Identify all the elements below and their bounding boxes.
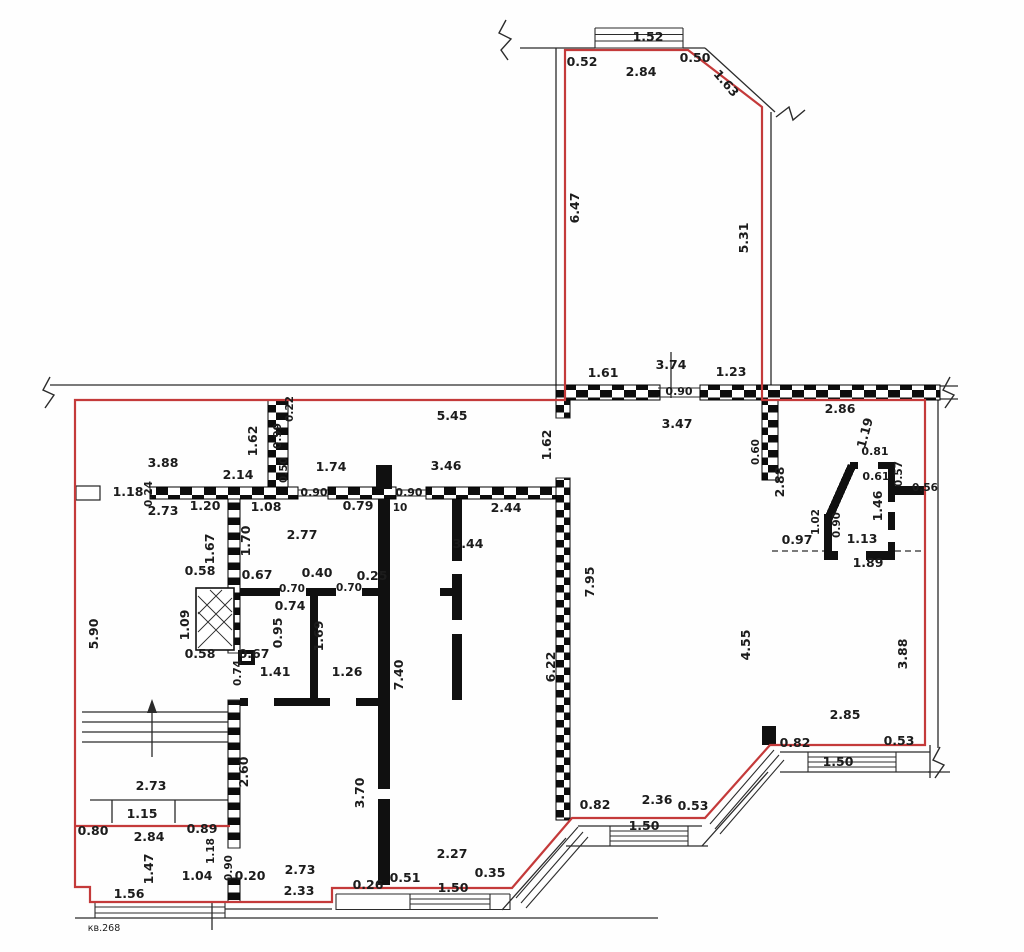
dimension-label: 2.27 [437, 846, 468, 861]
dimension-label: 0.60 [750, 439, 762, 465]
dimension-label: 1.47 [141, 854, 156, 885]
dimension-label: 2.14 [223, 467, 254, 482]
dimension-label: 0.82 [580, 797, 611, 812]
dimension-label: 1.74 [316, 459, 347, 474]
dimension-label: 3.44 [453, 536, 484, 551]
dimension-label: 2.84 [134, 829, 165, 844]
dimension-label: 7.40 [391, 659, 406, 690]
staircase [82, 699, 228, 757]
dimension-label: 2.77 [287, 527, 318, 542]
dimension-label: 1.41 [260, 664, 291, 679]
dimension-label: 0.22 [284, 396, 296, 422]
dimension-label: 3.88 [895, 639, 910, 670]
dimension-label: 0.89 [187, 821, 218, 836]
dimension-label: 0.57 [893, 461, 905, 487]
dimension-label: 0.82 [780, 735, 811, 750]
dimension-label: 0.90 [300, 486, 327, 499]
dimension-label: 1.50 [438, 880, 469, 895]
floor-plan-svg: 1.520.522.840.501.636.475.311.613.741.23… [0, 0, 1024, 952]
dimension-label: 1.23 [716, 364, 747, 379]
dimension-label: 1.62 [539, 430, 554, 461]
dimension-label: 0.90 [665, 385, 692, 398]
dimension-label: 0.50 [278, 457, 290, 483]
dimension-label: 0.99 [272, 423, 284, 449]
dimension-label: 0.25 [357, 568, 388, 583]
dimension-label: 10 [393, 502, 408, 514]
dimension-label: 0.90 [395, 486, 422, 499]
dimension-label: 1.13 [847, 531, 878, 546]
dimension-label: 1.18 [113, 484, 144, 499]
dimension-label: 0.52 [567, 54, 598, 69]
dimension-label: 2.86 [825, 401, 856, 416]
dimension-label: 1.63 [711, 66, 743, 99]
dimension-label: 2.44 [491, 500, 522, 515]
dimension-label: 0.50 [680, 50, 711, 65]
dimension-label: 0.80 [78, 823, 109, 838]
dimension-label: 1.61 [588, 365, 619, 380]
dimension-label: 2.85 [830, 707, 861, 722]
dimension-label: 6.47 [567, 193, 582, 224]
dimension-label: 1.56 [114, 886, 145, 901]
dimension-label: 1.26 [332, 664, 363, 679]
dimension-label: 0.81 [861, 445, 888, 458]
dimension-label: 0.74 [232, 660, 244, 686]
dimension-label: 1.46 [870, 490, 885, 521]
vent-shaft [196, 588, 234, 650]
dimension-label: 0.40 [302, 565, 333, 580]
dimension-label: 1.50 [629, 818, 660, 833]
dimension-label: 1.08 [251, 499, 282, 514]
dimension-label: 0.53 [884, 733, 915, 748]
load-bearing-walls [150, 385, 940, 902]
dimension-label: 6.22 [543, 652, 558, 683]
dimension-label: 0.58 [185, 646, 216, 661]
dimension-label: 3.74 [656, 357, 687, 372]
dimension-label: 2.84 [626, 64, 657, 79]
dimension-label: 1.18 [205, 838, 217, 864]
dimension-label: 3.46 [431, 458, 462, 473]
dimension-label: 0.70 [279, 583, 305, 595]
dimension-label: 0.56 [912, 482, 938, 494]
dimension-label: 2.73 [136, 778, 167, 793]
dimension-label: 0.97 [782, 532, 813, 547]
dimension-label: 3.47 [662, 416, 693, 431]
dimension-label: 1.09 [177, 610, 192, 641]
dimension-label: 2.73 [285, 862, 316, 877]
dimension-label: 1.67 [202, 534, 217, 565]
dimension-label: 0.74 [275, 598, 306, 613]
dimension-label: 2.33 [284, 883, 315, 898]
dimension-label: 0.95 [270, 618, 285, 649]
dimension-label: 0.53 [678, 798, 709, 813]
dimension-label: 2.36 [642, 792, 673, 807]
dimension-label: 0.79 [343, 498, 374, 513]
dimension-label: 3.70 [352, 777, 367, 808]
wall-niche [76, 486, 100, 500]
dimension-label: 1.20 [190, 498, 221, 513]
dimension-label: 5.45 [437, 408, 468, 423]
dimension-label: 0.67 [242, 567, 273, 582]
dimension-label: 0.90 [223, 855, 235, 881]
dimension-label: 0.58 [185, 563, 216, 578]
stairs-up-arrow [147, 699, 157, 713]
dimension-label: 0.90 [831, 512, 843, 538]
dimension-label: 7.95 [582, 567, 597, 598]
dimension-label: 3.88 [148, 455, 179, 470]
dimension-label: 5.90 [86, 618, 101, 649]
dimension-label: 4.55 [738, 630, 753, 661]
dimension-label: 1.50 [823, 754, 854, 769]
dimension-label: 1.89 [853, 555, 884, 570]
dimension-label: 0.61 [862, 470, 889, 483]
dimension-label: 1.70 [238, 525, 253, 556]
dimension-label: 0.20 [235, 868, 266, 883]
dimension-labels: 1.520.522.840.501.636.475.311.613.741.23… [78, 29, 938, 901]
dimension-label: 2.73 [148, 503, 179, 518]
dimension-label: 1.15 [127, 806, 158, 821]
dimension-label: 0.51 [390, 870, 421, 885]
dimension-label: 2.88 [772, 467, 787, 498]
dimension-label: 0.70 [336, 582, 362, 594]
dimension-label: 0.26 [353, 877, 384, 892]
dimension-label: 1.52 [633, 29, 664, 44]
dimension-label: 5.31 [736, 223, 751, 254]
dimension-label: 1.04 [182, 868, 213, 883]
dimension-label: 1.69 [311, 621, 326, 652]
door-openings [228, 388, 700, 878]
apartment-boundary [75, 50, 925, 902]
apartment-number: кв.268 [88, 923, 121, 934]
dimension-label: 0.67 [239, 646, 270, 661]
dimension-label: 0.35 [475, 865, 506, 880]
floor-plan-page: 1.520.522.840.501.636.475.311.613.741.23… [0, 0, 1024, 952]
dimension-label: 1.62 [245, 426, 260, 457]
dimension-label: 2.60 [236, 756, 251, 787]
